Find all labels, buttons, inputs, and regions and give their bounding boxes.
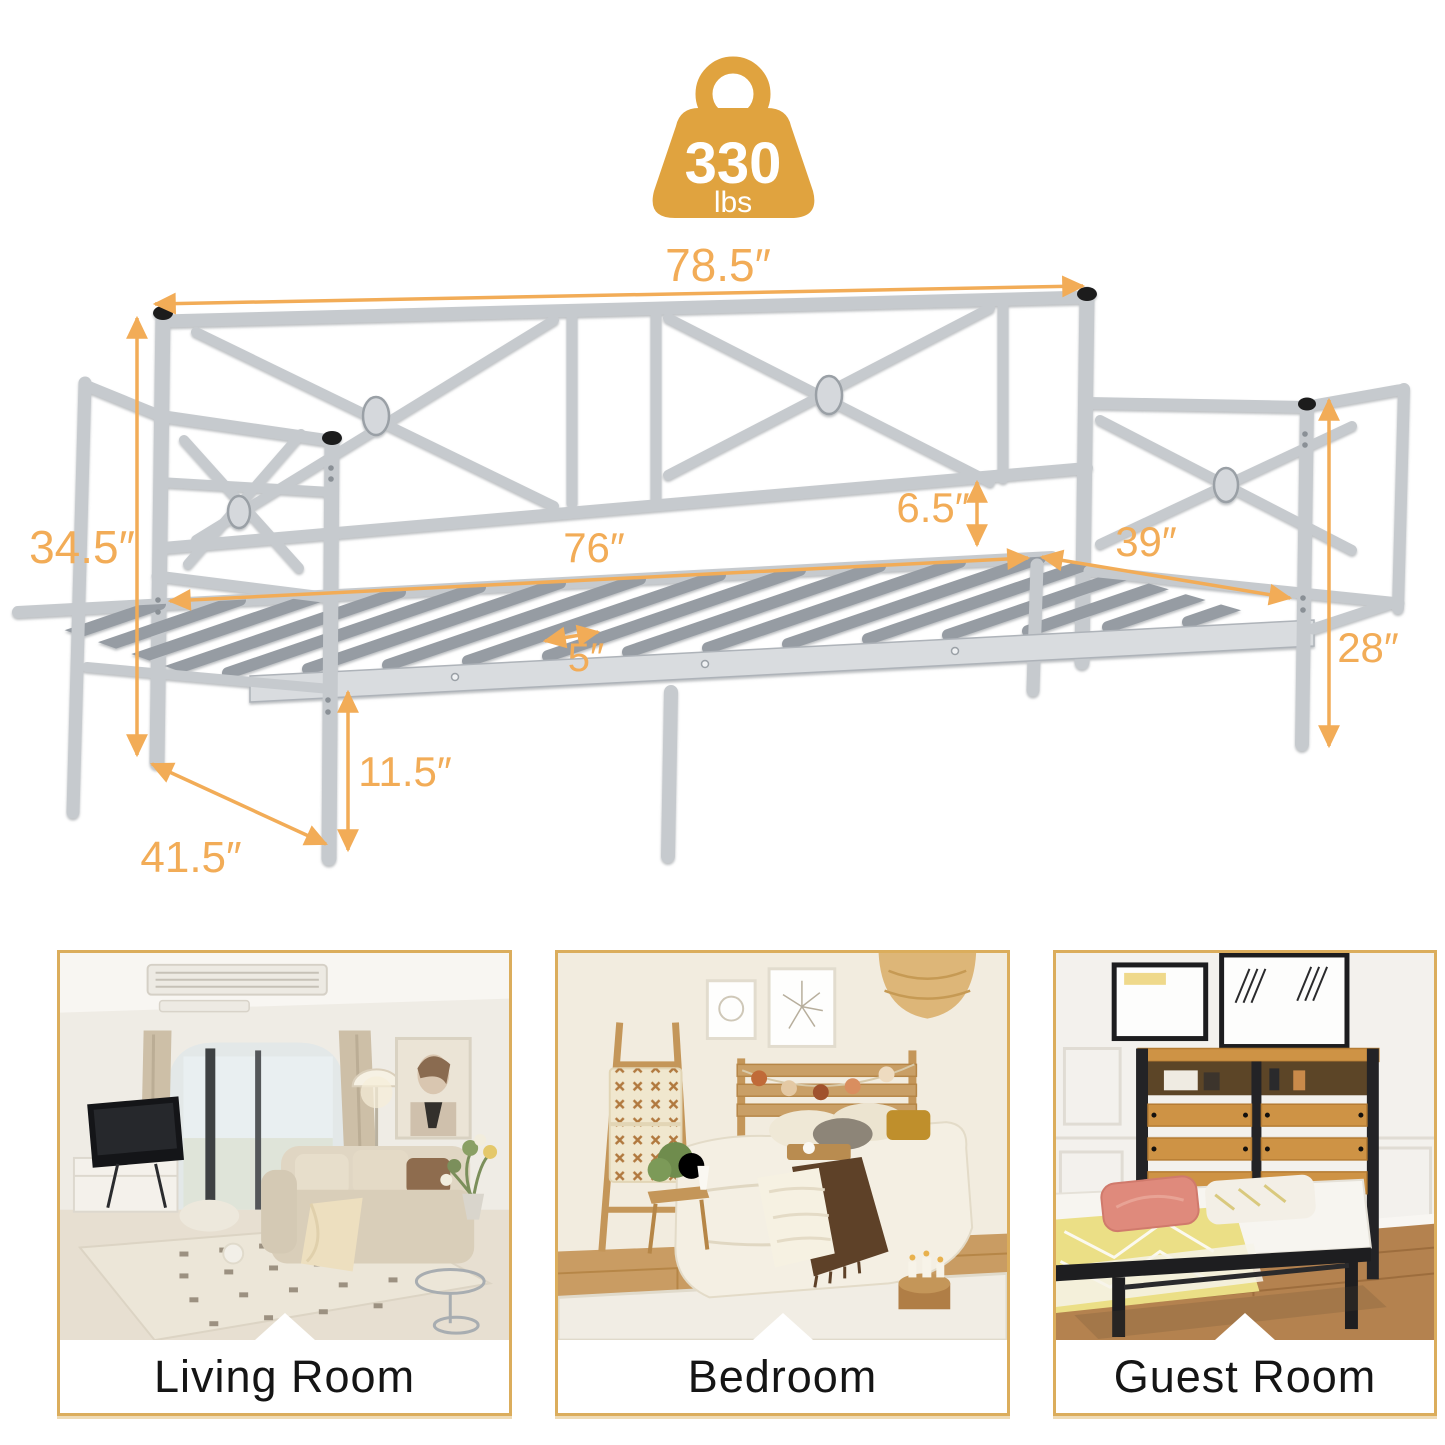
product-infographic: 330 lbs (0, 0, 1445, 1445)
pouf (179, 1200, 239, 1232)
living-room-illustration (60, 953, 509, 1340)
post-cap (153, 306, 173, 320)
room-card-living-room: Living Room (57, 950, 512, 1416)
room-label-living-room: Living Room (60, 1340, 509, 1413)
dimension-label: 76″ (563, 524, 625, 571)
daybed-dimension-diagram: 330 lbs (0, 0, 1445, 948)
dimension-label: 39″ (1115, 518, 1177, 565)
label-pointer (753, 1313, 813, 1340)
dimension-annotations: 78.5″ 34.5″ 6.5″ 76″ 39″ 28″ (29, 239, 1399, 882)
living-room-photo (60, 953, 509, 1340)
portrait-painting (397, 1038, 471, 1138)
post-cap (1298, 398, 1316, 411)
ball (223, 1244, 243, 1264)
art-frames (1114, 955, 1347, 1047)
center-back-leg (1033, 565, 1037, 690)
center-front-leg (668, 692, 671, 856)
label-pointer (1215, 1313, 1275, 1340)
weight-capacity-unit: lbs (714, 186, 752, 219)
dimension-overall-depth: 41.5″ (140, 764, 326, 882)
bedroom-photo (558, 953, 1007, 1340)
post-cap (1077, 287, 1097, 301)
dimension-label: 11.5″ (358, 748, 452, 795)
room-label-guest-room: Guest Room (1056, 1340, 1434, 1413)
dimension-label: 41.5″ (140, 833, 241, 882)
sofa (261, 1146, 474, 1271)
dimension-label: 6.5″ (896, 484, 969, 531)
bedroom-illustration (558, 953, 1007, 1340)
right-armrest (1089, 389, 1404, 744)
dimension-under-bed-clearance: 11.5″ (348, 692, 452, 850)
room-card-bedroom: Bedroom (555, 950, 1010, 1416)
guest-room-photo (1056, 953, 1434, 1340)
dimension-arm-height: 28″ (1329, 400, 1399, 746)
room-card-guest-room: Guest Room (1053, 950, 1437, 1416)
label-pointer (255, 1313, 315, 1340)
wall-frames (707, 969, 834, 1047)
dimension-label: 34.5″ (29, 521, 135, 573)
guest-room-illustration (1056, 953, 1434, 1340)
room-label-bedroom: Bedroom (558, 1340, 1007, 1413)
dimension-label: 28″ (1337, 624, 1399, 671)
post-cap (322, 431, 342, 445)
dimension-label: 78.5″ (665, 239, 771, 291)
dimension-backrest-to-deck: 6.5″ (896, 482, 977, 545)
dimension-label: 5″ (568, 636, 604, 680)
weight-icon: 330 lbs (653, 65, 815, 219)
